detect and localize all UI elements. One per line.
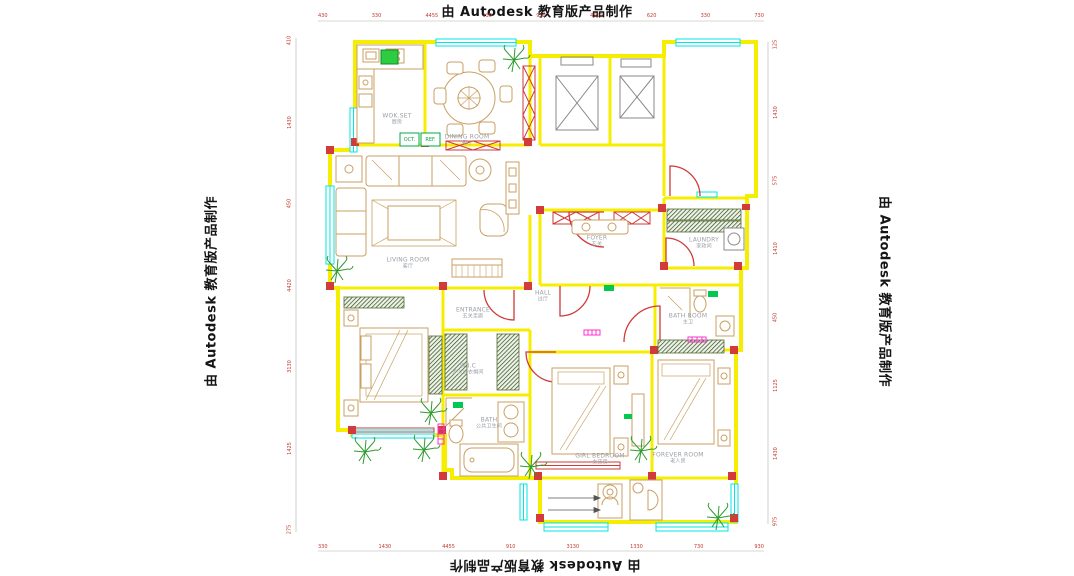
room-label-master-bath: BATH ROOM主卫 [669, 312, 707, 325]
dining-furniture [434, 60, 512, 136]
room-label-entrance: ENTRANCE玄关走廊 [456, 306, 490, 319]
kitchen-tag-right: REF. [425, 137, 436, 143]
dimension-value: 1425 [288, 442, 293, 455]
dimension-chain-right: 1251430575141045011251430975 [772, 42, 780, 524]
dimension-value: 275 [288, 525, 293, 535]
room-label-forever-room: FOREVER ROOM老人房 [652, 451, 703, 464]
dimension-value: 410 [288, 36, 293, 46]
dimension-value: 330 [372, 14, 382, 19]
forever-room-furniture [658, 360, 730, 446]
dimension-value: 910 [506, 545, 516, 550]
dimension-value: 3130 [288, 360, 293, 373]
dimension-value: 575 [774, 176, 779, 186]
dimension-value: 430 [318, 14, 328, 19]
room-label-girl-bedroom: GIRL BEDROOM女孩房 [575, 452, 625, 465]
room-label-dining: DINING ROOM餐厅 [445, 133, 490, 146]
dimension-value: 620 [647, 14, 657, 19]
bath-fixtures [446, 398, 524, 476]
master-bedroom-furniture [344, 310, 428, 416]
dimension-value: 1410 [774, 243, 779, 256]
corridor-fixtures [548, 480, 662, 520]
dimension-value: 3130 [566, 545, 579, 550]
cad-floorplan-page: 由 Autodesk 教育版产品制作 由 Autodesk 教育版产品制作 由 … [0, 0, 1074, 576]
laundry-furniture [724, 228, 744, 250]
dimension-value: 1430 [774, 447, 779, 460]
dimension-value: 1330 [630, 545, 643, 550]
dimension-value: 330 [318, 545, 328, 550]
girl-bedroom-furniture [552, 366, 644, 456]
dimension-value: 730 [694, 545, 704, 550]
room-label-living: LIVING ROOM客厅 [386, 256, 429, 269]
dimension-value: 450 [774, 312, 779, 322]
dimension-value: 730 [754, 14, 764, 19]
dimension-chain-top: 43033044551309104510620330730 [318, 12, 764, 20]
room-label-laundry: LAUNDRY家政间 [689, 236, 719, 249]
floor-plan-drawing: OCT. REF. [0, 0, 1074, 576]
dimension-value: 1430 [379, 545, 392, 550]
dimension-value: 930 [754, 545, 764, 550]
dimension-value: 450 [288, 199, 293, 209]
dimension-value: 4455 [426, 14, 439, 19]
dimension-value: 4420 [288, 279, 293, 292]
dimension-value: 330 [701, 14, 711, 19]
foyer-furniture [572, 220, 628, 234]
dimension-chain-left: 4101430450442031301425275 [286, 38, 294, 532]
dimension-value: 1125 [774, 379, 779, 392]
dimension-value: 4510 [590, 14, 603, 19]
dimension-value: 4455 [442, 545, 455, 550]
room-label-bath: BATH公共卫生间 [476, 416, 502, 429]
dimension-value: 130 [482, 14, 492, 19]
elevators [556, 57, 654, 130]
dimension-value: 910 [536, 14, 546, 19]
room-label-foyer: FOYER玄关 [587, 234, 607, 247]
kitchen-furniture [357, 45, 423, 143]
dimension-value: 125 [774, 40, 779, 50]
room-label-wic: W.I.C步入式衣帽间 [452, 362, 483, 375]
dimension-value: 1430 [288, 116, 293, 129]
dimension-chain-bottom: 3301430445591031301330730930 [318, 543, 764, 551]
dimension-value: 975 [774, 517, 779, 527]
kitchen-tag-left: OCT. [404, 137, 416, 143]
room-label-kitchen: WOK.SET厨房 [382, 112, 411, 125]
room-label-hall: HALL过厅 [535, 289, 551, 302]
dimension-value: 1430 [774, 106, 779, 119]
